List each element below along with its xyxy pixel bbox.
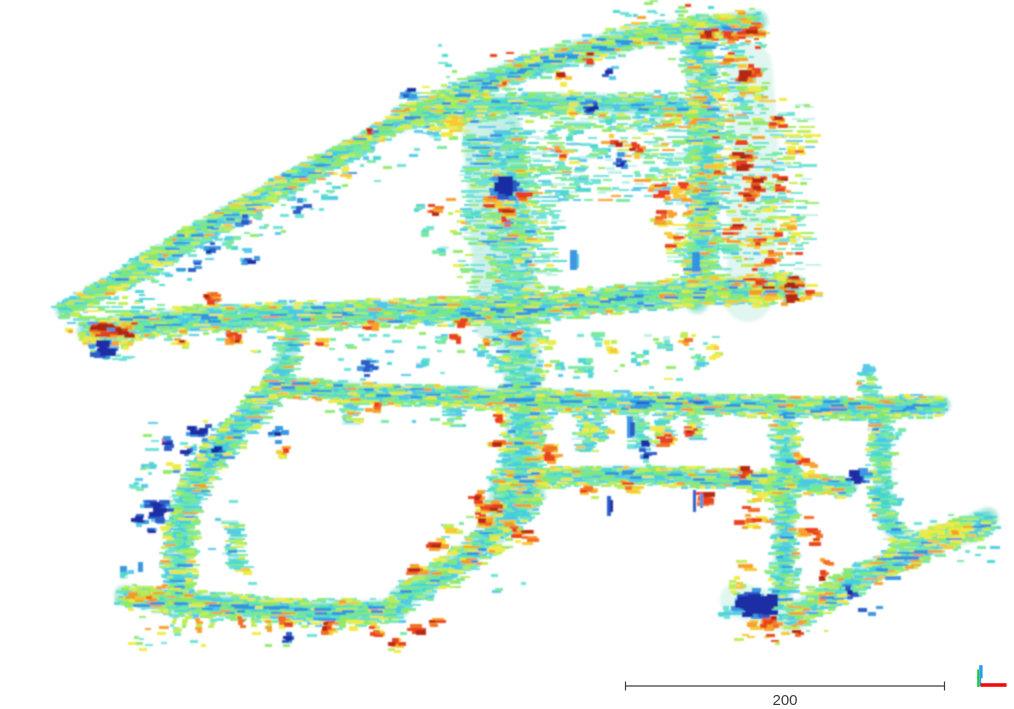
svg-text:200: 200 (772, 692, 797, 709)
